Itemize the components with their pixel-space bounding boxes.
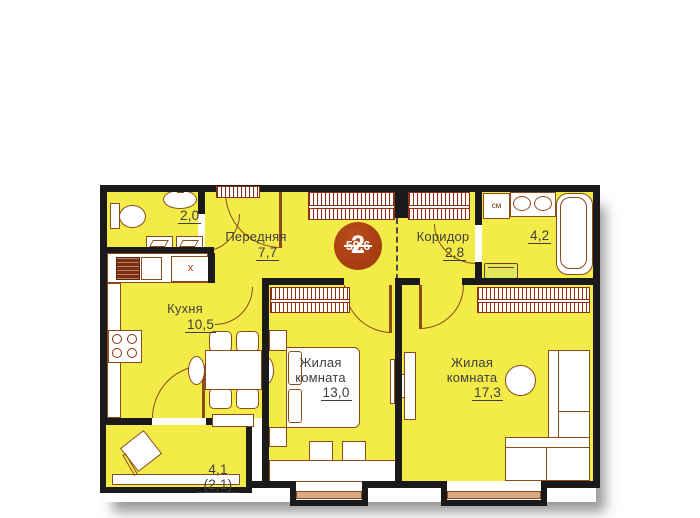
stove <box>108 330 142 363</box>
label-living1: Жилая комната 13,0 <box>278 356 363 385</box>
bay-wall <box>290 500 368 506</box>
window-desk <box>269 460 396 482</box>
living2-name: Жилая комната <box>428 356 516 385</box>
apartment-badge: 2 59,6 <box>334 222 382 270</box>
wall <box>475 192 482 225</box>
kitchen-window <box>212 414 254 427</box>
window-sill-living1 <box>296 491 362 499</box>
label-kitchen: Кухня 10,5 <box>148 302 222 317</box>
badge-total-area: 59,6 <box>346 239 370 253</box>
wall <box>395 278 402 488</box>
pillow <box>288 389 302 423</box>
wall <box>100 425 106 493</box>
balcony-area: 4,1 (2,1) <box>197 462 239 493</box>
sofa-section-horizontal <box>505 437 590 481</box>
dining-table <box>205 350 262 390</box>
stool <box>309 441 333 461</box>
washing-machine-label: см <box>483 201 510 210</box>
wall <box>262 278 344 285</box>
nightstand <box>269 427 287 447</box>
toilet-bowl <box>119 205 146 228</box>
dining-chair <box>188 356 205 385</box>
corridor-name: Коридор <box>404 230 482 245</box>
dining-chair <box>209 331 232 352</box>
nightstand <box>269 330 287 351</box>
living2-area: 17,3 <box>472 385 503 401</box>
living1-area: 13,0 <box>321 385 352 401</box>
wall <box>100 185 600 192</box>
stool <box>342 441 366 461</box>
wc-area: 2,0 <box>178 208 201 224</box>
wall <box>246 425 252 487</box>
wall <box>100 185 107 425</box>
corridor-area: 2,8 <box>443 245 466 261</box>
kitchen-sink-unit <box>116 257 140 280</box>
dining-chair <box>209 388 232 409</box>
wall <box>262 278 269 488</box>
label-hallway: Передняя 7,7 <box>208 230 304 245</box>
dining-chair <box>236 388 259 409</box>
wall <box>547 481 600 488</box>
window-sill-living2 <box>447 491 541 499</box>
hallway-area: 7,7 <box>256 245 279 261</box>
kitchen-sink-drainer <box>141 257 162 280</box>
wall <box>593 185 600 488</box>
wall <box>100 418 152 425</box>
living1-wardrobe <box>270 287 350 313</box>
zone-divider-dashed <box>396 218 398 280</box>
tv-unit-living2 <box>404 352 416 420</box>
label-corridor: Коридор 2,8 <box>404 230 482 245</box>
floor-plan: x см <box>0 0 700 518</box>
wall <box>100 247 214 253</box>
dining-chair <box>236 331 259 352</box>
living2-door-leaf <box>419 285 422 329</box>
corridor-wardrobe <box>408 192 470 220</box>
label-living2: Жилая комната 17,3 <box>428 356 516 385</box>
hallway-name: Передняя <box>208 230 304 245</box>
living2-wardrobe <box>477 287 590 313</box>
bay-wall <box>441 500 547 506</box>
kitchen-name: Кухня <box>148 302 222 317</box>
bathroom-area: 4,2 <box>528 228 551 244</box>
entry-threshold-hatch <box>216 186 260 198</box>
bathtub <box>556 193 593 275</box>
kitchen-area: 10,5 <box>185 317 216 333</box>
laundry-basket <box>484 263 518 279</box>
living1-name: Жилая комната <box>278 356 363 385</box>
living1-door-leaf <box>389 285 392 333</box>
wall <box>368 481 441 488</box>
wall <box>208 253 215 283</box>
wall <box>475 262 482 285</box>
double-sink-counter <box>510 192 556 217</box>
wall <box>395 192 408 218</box>
kitchen-x-label: x <box>171 262 210 274</box>
hallway-wardrobe <box>308 192 395 220</box>
